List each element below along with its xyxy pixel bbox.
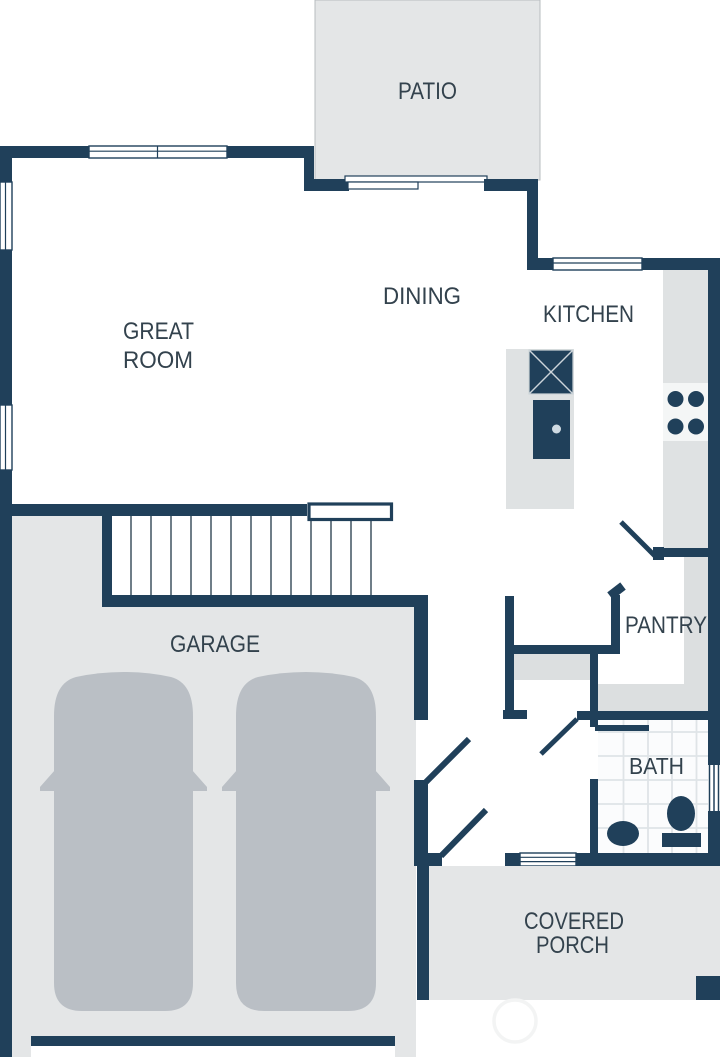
svg-text:PATIO: PATIO [398, 78, 457, 105]
svg-text:PANTRY: PANTRY [625, 612, 707, 639]
svg-text:DINING: DINING [383, 283, 461, 310]
svg-text:PORCH: PORCH [536, 932, 609, 959]
svg-text:GARAGE: GARAGE [170, 631, 260, 658]
svg-text:GREAT: GREAT [123, 318, 194, 345]
svg-text:ROOM: ROOM [123, 347, 193, 374]
svg-text:COVERED: COVERED [524, 908, 624, 935]
svg-text:BATH: BATH [629, 753, 684, 779]
svg-text:KITCHEN: KITCHEN [543, 301, 634, 328]
